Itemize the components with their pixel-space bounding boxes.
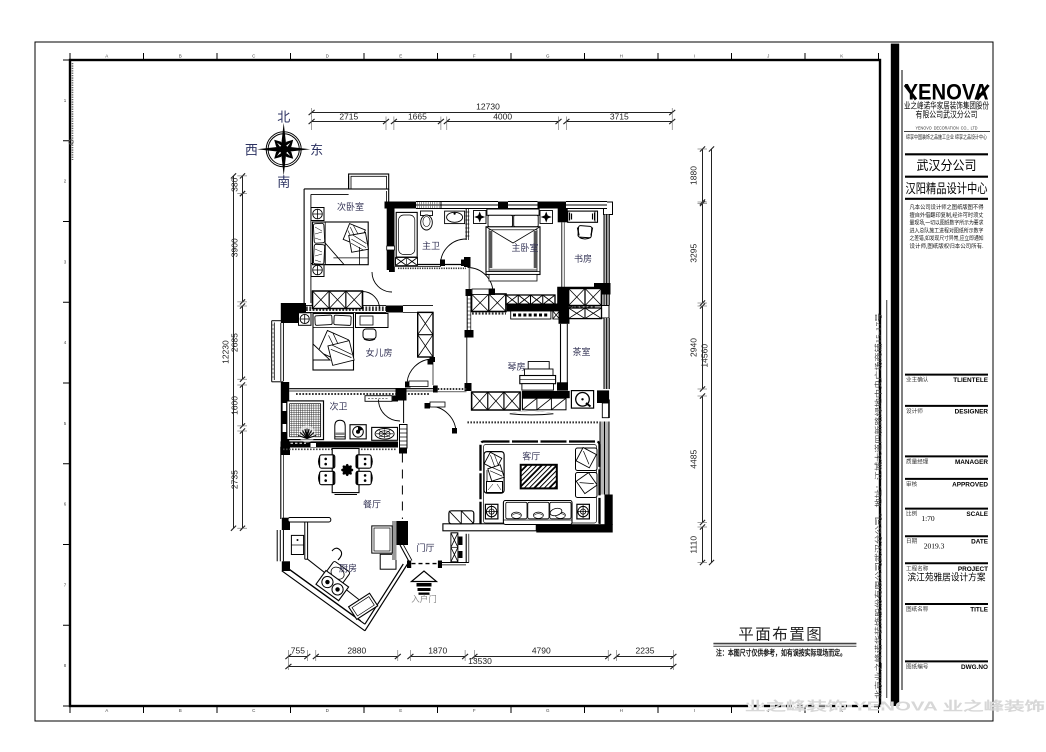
svg-text:SCALE: SCALE	[966, 511, 988, 518]
svg-text:1870: 1870	[428, 646, 447, 656]
svg-text:凡本公司设计师之图纸版图不得: 凡本公司设计师之图纸版图不得	[910, 203, 984, 211]
svg-text:3900: 3900	[230, 238, 240, 257]
svg-text:I: I	[694, 708, 695, 713]
svg-text:茶室: 茶室	[572, 346, 590, 357]
svg-text:厨房: 厨房	[339, 563, 357, 574]
svg-text:业之峰装饰 YENOVA 业之峰装饰: 业之峰装饰 YENOVA 业之峰装饰	[745, 699, 1046, 714]
svg-text:G: G	[546, 54, 550, 59]
svg-text:擅自外借翻印复制,经许可时须丈: 擅自外借翻印复制,经许可时须丈	[910, 211, 984, 219]
svg-text:3295: 3295	[689, 244, 699, 263]
svg-text:工程名称: 工程名称	[906, 564, 929, 572]
svg-text:书房: 书房	[574, 253, 592, 264]
svg-text:K: K	[840, 54, 843, 59]
svg-text:武汉分公司: 武汉分公司	[917, 158, 977, 173]
svg-text:2880: 2880	[347, 646, 366, 656]
svg-text:门厅: 门厅	[416, 542, 434, 553]
svg-text:北京业之峰诺华装饰股份有限公司武汉分公司。地址：江城大道四新: 北京业之峰诺华装饰股份有限公司武汉分公司。地址：江城大道四新路绿地中央广场商铺1…	[873, 313, 883, 699]
svg-text:餐厅: 餐厅	[363, 499, 381, 510]
svg-text:F: F	[473, 708, 476, 713]
svg-text:13530: 13530	[468, 656, 492, 666]
svg-text:量现场,一切以图纸数字所示为要求: 量现场,一切以图纸数字所示为要求	[910, 219, 984, 227]
svg-text:有限公司武汉分公司: 有限公司武汉分公司	[916, 110, 978, 120]
svg-text:TITLE: TITLE	[970, 607, 988, 614]
svg-text:J: J	[767, 54, 769, 59]
svg-text:I: I	[694, 54, 695, 59]
svg-text:次卧室: 次卧室	[337, 201, 364, 212]
svg-text:图纸编号: 图纸编号	[906, 662, 929, 670]
svg-text:MANAGER: MANAGER	[955, 459, 988, 466]
svg-text:平面布置图: 平面布置图	[738, 626, 823, 644]
svg-text:设计师: 设计师	[906, 407, 923, 415]
svg-text:DESIGNER: DESIGNER	[955, 408, 989, 415]
svg-text:滨江苑雅居设计方案: 滨江苑雅居设计方案	[908, 572, 986, 584]
svg-text:DWG.NO: DWG.NO	[961, 664, 988, 671]
svg-text:G: G	[546, 708, 550, 713]
svg-text:1110: 1110	[689, 536, 699, 554]
svg-text:业主确认: 业主确认	[906, 376, 929, 384]
svg-text:B: B	[179, 54, 182, 59]
svg-text:4000: 4000	[493, 112, 512, 122]
svg-text:次卫: 次卫	[329, 401, 347, 412]
svg-text:B: B	[179, 708, 182, 713]
svg-text:缔享中国装饰之品施工企业 缔享之品设计中心: 缔享中国装饰之品施工企业 缔享之品设计中心	[906, 133, 987, 141]
svg-text:客厅: 客厅	[522, 451, 540, 462]
svg-text:女儿房: 女儿房	[365, 347, 392, 358]
svg-text:YENOVO DECORATION CO., LTD: YENOVO DECORATION CO., LTD	[916, 126, 978, 132]
svg-text:TLIENTELE: TLIENTELE	[953, 377, 989, 384]
svg-text:4485: 4485	[689, 450, 699, 469]
svg-text:A: A	[105, 54, 108, 59]
svg-text:入户门: 入户门	[411, 594, 437, 604]
svg-text:H: H	[620, 54, 623, 59]
svg-text:西: 西	[245, 143, 258, 158]
svg-text:北: 北	[277, 110, 290, 125]
svg-text:380: 380	[230, 177, 240, 191]
svg-text:进入总队施工进程对图纸所示数字: 进入总队施工进程对图纸所示数字	[910, 226, 984, 234]
svg-text:2685: 2685	[230, 333, 240, 352]
svg-text:比例: 比例	[906, 510, 918, 518]
svg-text:业之峰诺华家居装饰集团股份: 业之峰诺华家居装饰集团股份	[904, 101, 989, 111]
svg-text:日期: 日期	[906, 538, 918, 545]
svg-text:东: 东	[310, 143, 323, 158]
svg-text:1665: 1665	[408, 112, 427, 122]
svg-text:1880: 1880	[689, 166, 699, 185]
svg-text:APPROVED: APPROVED	[952, 481, 988, 488]
svg-text:设计师,图纸版权归本公司所有.: 设计师,图纸版权归本公司所有.	[910, 242, 985, 250]
svg-text:DATE: DATE	[971, 539, 989, 546]
svg-text:主卫: 主卫	[422, 240, 440, 251]
svg-text:主卧室: 主卧室	[511, 242, 538, 253]
svg-text:755: 755	[291, 646, 305, 656]
svg-text:12730: 12730	[476, 102, 500, 112]
svg-text:1600: 1600	[230, 396, 240, 415]
svg-text:E: E	[399, 708, 402, 713]
svg-text:之差错,如发现尺寸异常,应立即通知: 之差错,如发现尺寸异常,应立即通知	[910, 234, 984, 242]
svg-text:注：本图尺寸仅供参考，如有误按实际现场而定。: 注：本图尺寸仅供参考，如有误按实际现场而定。	[716, 648, 846, 658]
svg-text:汉阳精品设计中心: 汉阳精品设计中心	[906, 182, 988, 196]
svg-text:3715: 3715	[610, 112, 629, 122]
svg-text:14560: 14560	[700, 344, 710, 368]
svg-text:2235: 2235	[636, 646, 655, 656]
svg-text:2019.3: 2019.3	[924, 542, 945, 551]
svg-text:图纸名称: 图纸名称	[906, 605, 929, 613]
svg-text:2715: 2715	[339, 112, 358, 122]
svg-text:PROJECT: PROJECT	[958, 566, 988, 573]
svg-text:A: A	[105, 708, 108, 713]
svg-text:E: E	[399, 54, 402, 59]
svg-text:琴房: 琴房	[507, 361, 525, 372]
svg-text:2735: 2735	[230, 470, 240, 489]
svg-text:4790: 4790	[532, 646, 551, 656]
svg-text:2940: 2940	[689, 338, 699, 357]
svg-text:12230: 12230	[221, 340, 231, 364]
svg-text:南: 南	[277, 175, 290, 190]
svg-text:审核: 审核	[906, 480, 918, 488]
svg-text:质量经理: 质量经理	[906, 457, 929, 465]
svg-text:1:70: 1:70	[921, 514, 935, 523]
svg-text:H: H	[620, 708, 623, 713]
svg-text:F: F	[473, 54, 476, 59]
